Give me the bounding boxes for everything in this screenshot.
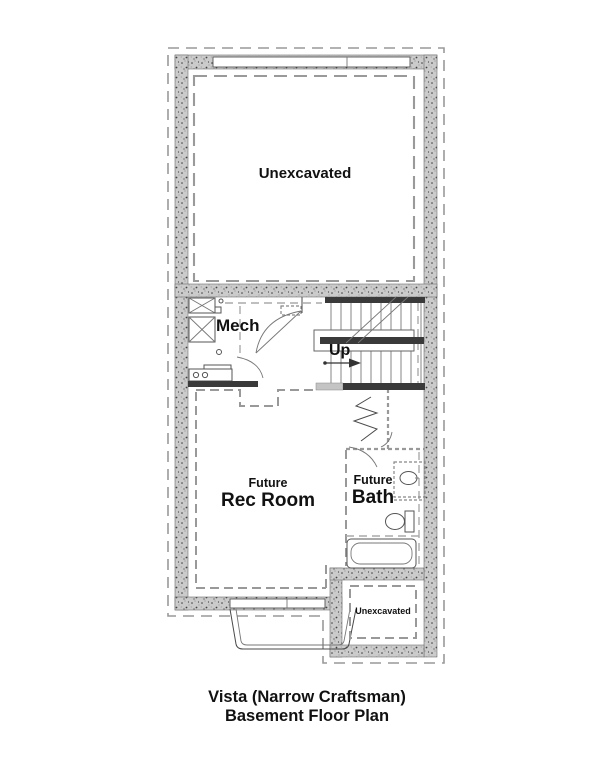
room-label-mech: Mech: [216, 317, 259, 335]
floor-drain-icon: [217, 350, 222, 355]
door-swing-icon: [256, 297, 302, 353]
toilet-icon: [386, 511, 415, 532]
door-swing-icon: [237, 357, 263, 378]
rec-room-label-line2: Rec Room: [198, 491, 338, 512]
room-label-unexcavated-bottom: Unexcavated: [342, 607, 424, 617]
floor-plan-page: Unexcavated Mech Up Future Rec Room Futu…: [0, 0, 614, 768]
plan-title-line2: Basement Floor Plan: [0, 708, 614, 726]
rec-room-label-line1: Future: [198, 477, 338, 491]
laundry-sink-icon: [189, 365, 232, 381]
up-arrow-icon: [323, 359, 361, 368]
stairs-up-label: Up: [329, 342, 350, 359]
room-label-bath: Future Bath: [342, 474, 404, 508]
room-label-rec-room: Future Rec Room: [198, 477, 338, 511]
egress-window-icon: [230, 599, 325, 608]
furnace-icon: [189, 317, 215, 342]
bath-label-line1: Future: [342, 474, 404, 488]
door-swing-icon: [381, 432, 392, 447]
bathtub-icon: [347, 539, 416, 568]
plan-title-line1: Vista (Narrow Craftsman): [0, 689, 614, 707]
bifold-door-icon: [354, 397, 377, 441]
water-heater-icon: [189, 298, 223, 313]
room-label-unexcavated-top: Unexcavated: [205, 166, 405, 182]
top-window-band: [213, 57, 410, 67]
mech-equipment: [188, 298, 258, 387]
floor-plan-drawing: [0, 0, 614, 768]
bath-label-line2: Bath: [342, 488, 404, 509]
